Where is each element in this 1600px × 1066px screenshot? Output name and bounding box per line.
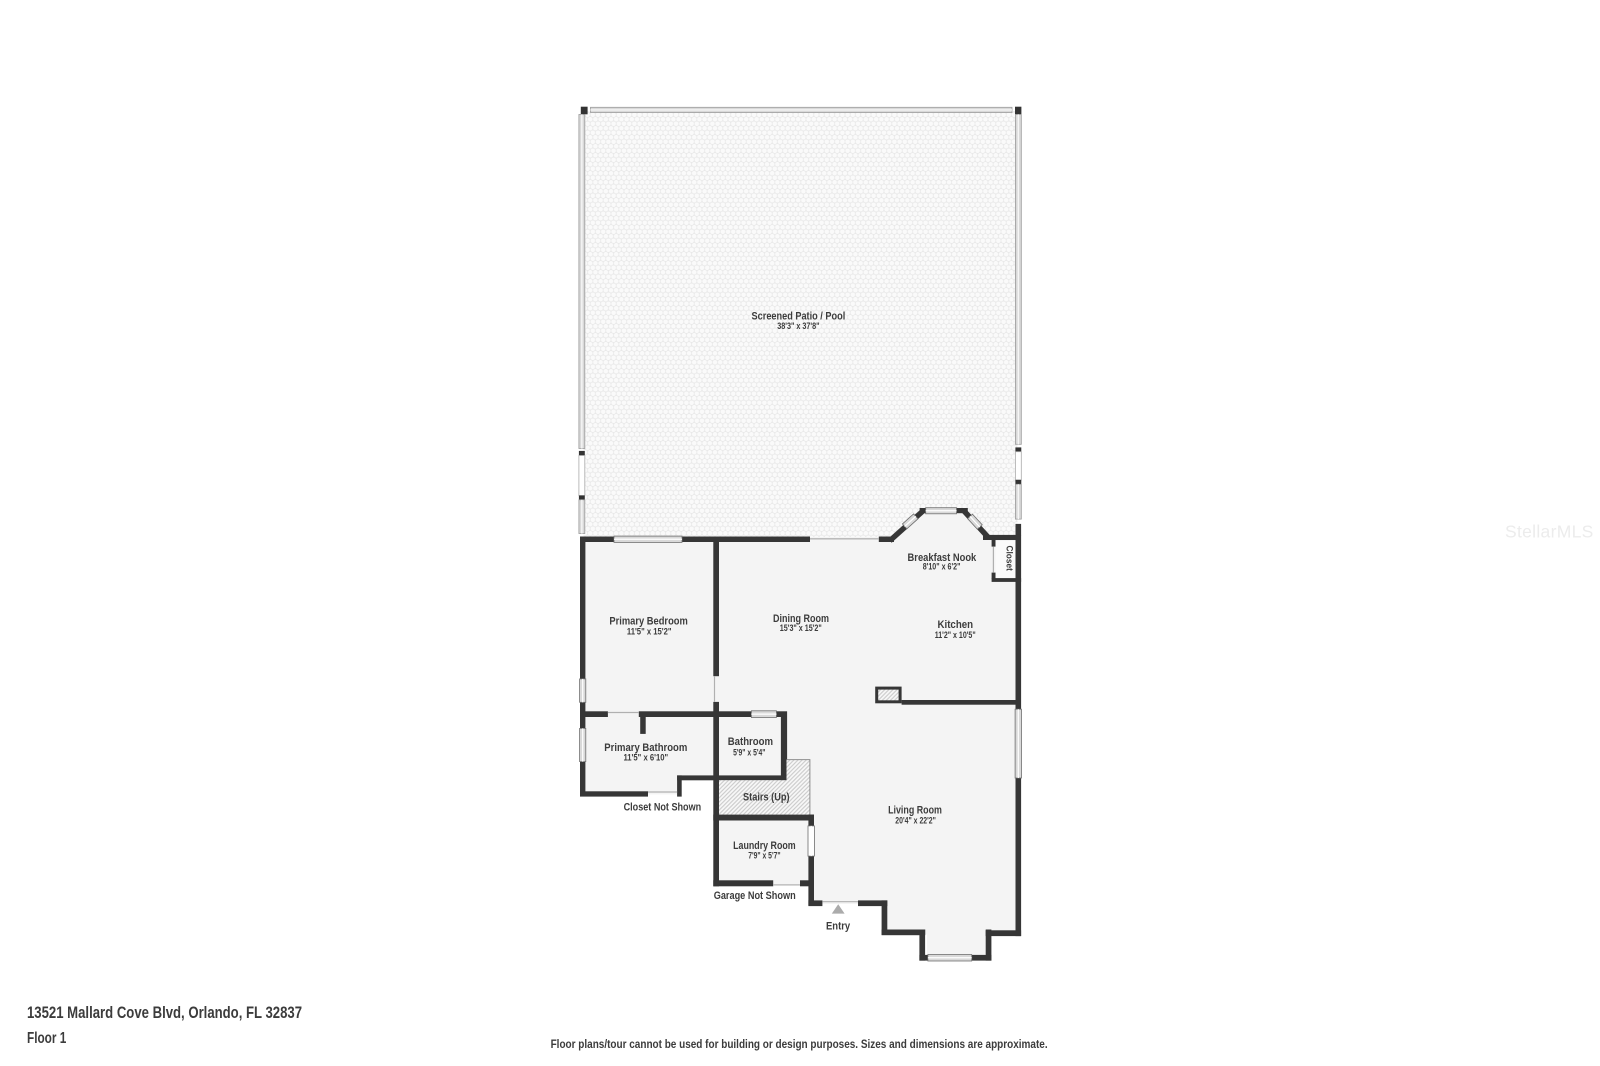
svg-text:8'10" x 6'2": 8'10" x 6'2" — [923, 561, 961, 571]
svg-text:5'9" x 5'4": 5'9" x 5'4" — [733, 748, 765, 758]
svg-text:Entry: Entry — [826, 921, 851, 933]
svg-text:11'5" x 6'10": 11'5" x 6'10" — [623, 753, 668, 763]
svg-text:38'3" x 37'8": 38'3" x 37'8" — [777, 321, 819, 331]
svg-text:Floor 1: Floor 1 — [27, 1030, 67, 1047]
svg-text:Garage Not Shown: Garage Not Shown — [714, 890, 796, 902]
svg-text:11'2" x 10'5": 11'2" x 10'5" — [935, 630, 976, 640]
svg-text:20'4" x 22'2": 20'4" x 22'2" — [895, 815, 936, 825]
svg-text:11'5" x 15'2": 11'5" x 15'2" — [627, 626, 672, 636]
svg-text:Closet Not Shown: Closet Not Shown — [624, 801, 702, 813]
svg-text:7'9" x 5'7": 7'9" x 5'7" — [748, 851, 780, 861]
svg-text:Closet: Closet — [1004, 546, 1014, 571]
svg-text:15'3" x 15'2": 15'3" x 15'2" — [780, 623, 822, 633]
svg-text:Stairs (Up): Stairs (Up) — [743, 791, 790, 803]
svg-text:13521 Mallard Cove Blvd, Orlan: 13521 Mallard Cove Blvd, Orlando, FL 328… — [27, 1004, 302, 1022]
svg-text:Floor plans/tour cannot be use: Floor plans/tour cannot be used for buil… — [551, 1037, 1048, 1051]
svg-text:StellarMLS: StellarMLS — [1505, 522, 1594, 542]
svg-text:Bathroom: Bathroom — [728, 736, 773, 748]
